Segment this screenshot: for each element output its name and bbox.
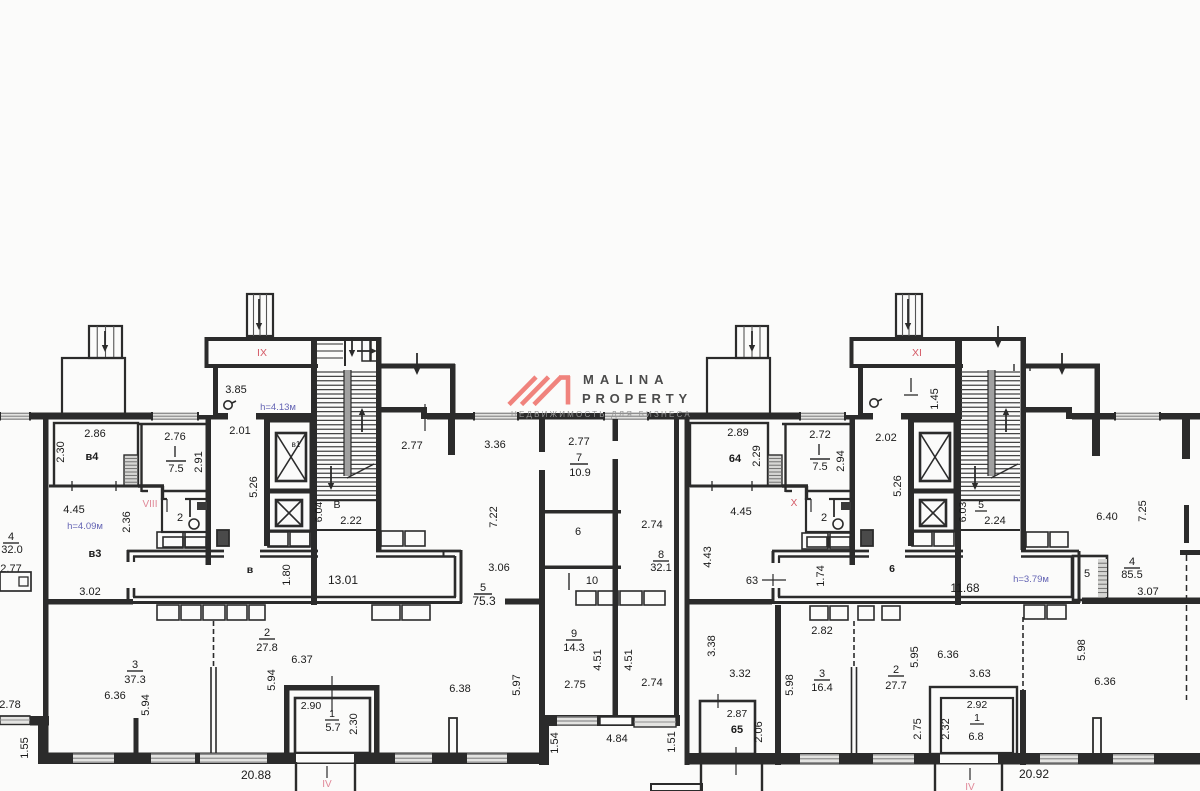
svg-text:5.94: 5.94 — [266, 669, 278, 690]
svg-text:IX: IX — [257, 347, 267, 359]
svg-text:2.76: 2.76 — [164, 431, 185, 443]
svg-text:3: 3 — [819, 668, 825, 680]
svg-text:2.02: 2.02 — [875, 432, 896, 444]
svg-text:IV: IV — [965, 782, 975, 791]
svg-text:6.04: 6.04 — [313, 502, 325, 523]
svg-text:10.9: 10.9 — [569, 467, 590, 479]
svg-text:2: 2 — [177, 512, 183, 524]
svg-text:5: 5 — [978, 499, 984, 511]
svg-text:в1: в1 — [292, 440, 301, 449]
svg-text:4.51: 4.51 — [623, 649, 635, 670]
svg-text:2.78: 2.78 — [0, 699, 21, 711]
svg-text:32.0: 32.0 — [1, 544, 22, 556]
svg-text:64: 64 — [729, 453, 742, 465]
svg-text:27.7: 27.7 — [885, 680, 906, 692]
svg-text:IV: IV — [322, 779, 332, 790]
svg-text:6.36: 6.36 — [104, 690, 125, 702]
svg-text:1.51: 1.51 — [666, 731, 678, 752]
svg-text:h=3.79м: h=3.79м — [1013, 574, 1049, 585]
svg-text:в4: в4 — [86, 451, 100, 463]
svg-text:5: 5 — [1084, 568, 1090, 580]
svg-text:5.98: 5.98 — [784, 674, 796, 695]
svg-text:1.45: 1.45 — [929, 388, 941, 409]
svg-text:4.51: 4.51 — [592, 649, 604, 670]
svg-text:2.89: 2.89 — [727, 427, 748, 439]
svg-text:7: 7 — [576, 452, 582, 464]
svg-text:6.8: 6.8 — [968, 731, 983, 743]
svg-text:2.74: 2.74 — [641, 677, 662, 689]
svg-text:XI: XI — [912, 347, 922, 359]
svg-text:2.22: 2.22 — [340, 515, 361, 527]
svg-text:НЕДВИЖИМОСТЬ ДЛЯ БИЗНЕСА: НЕДВИЖИМОСТЬ ДЛЯ БИЗНЕСА — [511, 410, 692, 419]
svg-text:6.38: 6.38 — [449, 683, 470, 695]
svg-text:3: 3 — [132, 659, 138, 671]
svg-text:2.86: 2.86 — [84, 428, 105, 440]
svg-text:5: 5 — [480, 582, 486, 594]
svg-text:5.94: 5.94 — [140, 694, 152, 715]
svg-text:2.92: 2.92 — [967, 699, 988, 711]
svg-text:4.45: 4.45 — [63, 504, 84, 516]
svg-text:13.01: 13.01 — [328, 573, 358, 587]
svg-text:6.37: 6.37 — [291, 654, 312, 666]
svg-text:2.90: 2.90 — [301, 700, 322, 712]
svg-text:2.74: 2.74 — [641, 519, 662, 531]
svg-text:63: 63 — [746, 575, 758, 587]
svg-text:8: 8 — [658, 549, 664, 561]
svg-text:10: 10 — [586, 575, 598, 587]
svg-text:h=4.09м: h=4.09м — [67, 521, 103, 532]
svg-text:VIII: VIII — [142, 499, 157, 510]
svg-text:1.54: 1.54 — [549, 732, 561, 753]
svg-text:2.72: 2.72 — [809, 429, 830, 441]
svg-text:7.22: 7.22 — [488, 506, 500, 527]
svg-text:3.02: 3.02 — [79, 586, 100, 598]
svg-text:2.36: 2.36 — [121, 511, 133, 532]
svg-text:2.82: 2.82 — [811, 625, 832, 637]
svg-text:В: В — [333, 499, 340, 511]
svg-text:37.3: 37.3 — [124, 674, 145, 686]
svg-text:75.3: 75.3 — [472, 594, 496, 608]
svg-text:6.36: 6.36 — [937, 649, 958, 661]
svg-text:в: в — [247, 564, 254, 576]
svg-text:3.63: 3.63 — [969, 668, 990, 680]
svg-text:4: 4 — [1129, 556, 1135, 568]
svg-text:7.5: 7.5 — [812, 461, 827, 473]
svg-text:5.97: 5.97 — [511, 674, 523, 695]
svg-text:2: 2 — [893, 664, 899, 676]
svg-text:2.87: 2.87 — [727, 708, 748, 720]
svg-text:4.84: 4.84 — [606, 733, 627, 745]
svg-text:1.55: 1.55 — [19, 737, 31, 758]
svg-text:9: 9 — [571, 628, 577, 640]
svg-text:85.5: 85.5 — [1121, 569, 1142, 581]
svg-text:65: 65 — [731, 724, 743, 736]
svg-text:5.98: 5.98 — [1076, 639, 1088, 660]
svg-text:2.91: 2.91 — [193, 451, 205, 472]
svg-text:3.85: 3.85 — [225, 384, 246, 396]
svg-text:16.4: 16.4 — [811, 682, 832, 694]
svg-text:2.30: 2.30 — [55, 441, 67, 462]
svg-text:2.24: 2.24 — [984, 515, 1005, 527]
svg-text:14.3: 14.3 — [563, 642, 584, 654]
svg-text:7.25: 7.25 — [1137, 500, 1149, 521]
svg-text:2.29: 2.29 — [751, 445, 763, 466]
svg-text:3.07: 3.07 — [1137, 586, 1158, 598]
svg-text:6.40: 6.40 — [1096, 511, 1117, 523]
svg-text:6.03: 6.03 — [957, 502, 969, 523]
svg-text:5.26: 5.26 — [892, 475, 904, 496]
svg-text:6.36: 6.36 — [1094, 676, 1115, 688]
svg-text:1.80: 1.80 — [281, 564, 293, 585]
svg-text:6: 6 — [575, 526, 581, 538]
svg-text:3.32: 3.32 — [729, 668, 750, 680]
svg-text:3.36: 3.36 — [484, 439, 505, 451]
svg-text:3.06: 3.06 — [488, 562, 509, 574]
svg-text:27.8: 27.8 — [256, 642, 277, 654]
svg-text:5.26: 5.26 — [248, 476, 260, 497]
svg-text:32.1: 32.1 — [650, 562, 671, 574]
svg-text:20.92: 20.92 — [1019, 767, 1049, 781]
svg-text:4.43: 4.43 — [702, 546, 714, 567]
svg-text:в3: в3 — [89, 548, 102, 560]
svg-text:2.94: 2.94 — [835, 450, 847, 471]
svg-text:3.38: 3.38 — [706, 635, 718, 656]
svg-text:2.75: 2.75 — [912, 718, 924, 739]
svg-text:2: 2 — [821, 512, 827, 524]
svg-text:2: 2 — [264, 627, 270, 639]
svg-text:2.77: 2.77 — [0, 563, 21, 575]
svg-text:2.77: 2.77 — [401, 440, 422, 452]
svg-text:2.77: 2.77 — [568, 436, 589, 448]
svg-text:2.75: 2.75 — [564, 679, 585, 691]
svg-text:h=4.13м: h=4.13м — [260, 402, 296, 413]
svg-text:1: 1 — [329, 708, 335, 720]
svg-text:2.06: 2.06 — [753, 721, 765, 742]
svg-text:MALINA: MALINA — [583, 372, 670, 387]
svg-text:1.74: 1.74 — [815, 565, 827, 586]
svg-text:PROPERTY: PROPERTY — [582, 391, 692, 406]
svg-text:2.01: 2.01 — [229, 425, 250, 437]
svg-text:11.68: 11.68 — [950, 581, 979, 595]
svg-text:4: 4 — [8, 531, 14, 543]
svg-text:5.7: 5.7 — [325, 722, 340, 734]
svg-text:6: 6 — [889, 563, 895, 575]
svg-text:4.45: 4.45 — [730, 506, 751, 518]
svg-text:7.5: 7.5 — [168, 463, 183, 475]
svg-text:5.95: 5.95 — [909, 646, 921, 667]
svg-text:20.88: 20.88 — [241, 768, 271, 782]
svg-text:X: X — [791, 498, 798, 509]
svg-text:1: 1 — [974, 712, 980, 724]
svg-text:2.30: 2.30 — [348, 713, 360, 734]
